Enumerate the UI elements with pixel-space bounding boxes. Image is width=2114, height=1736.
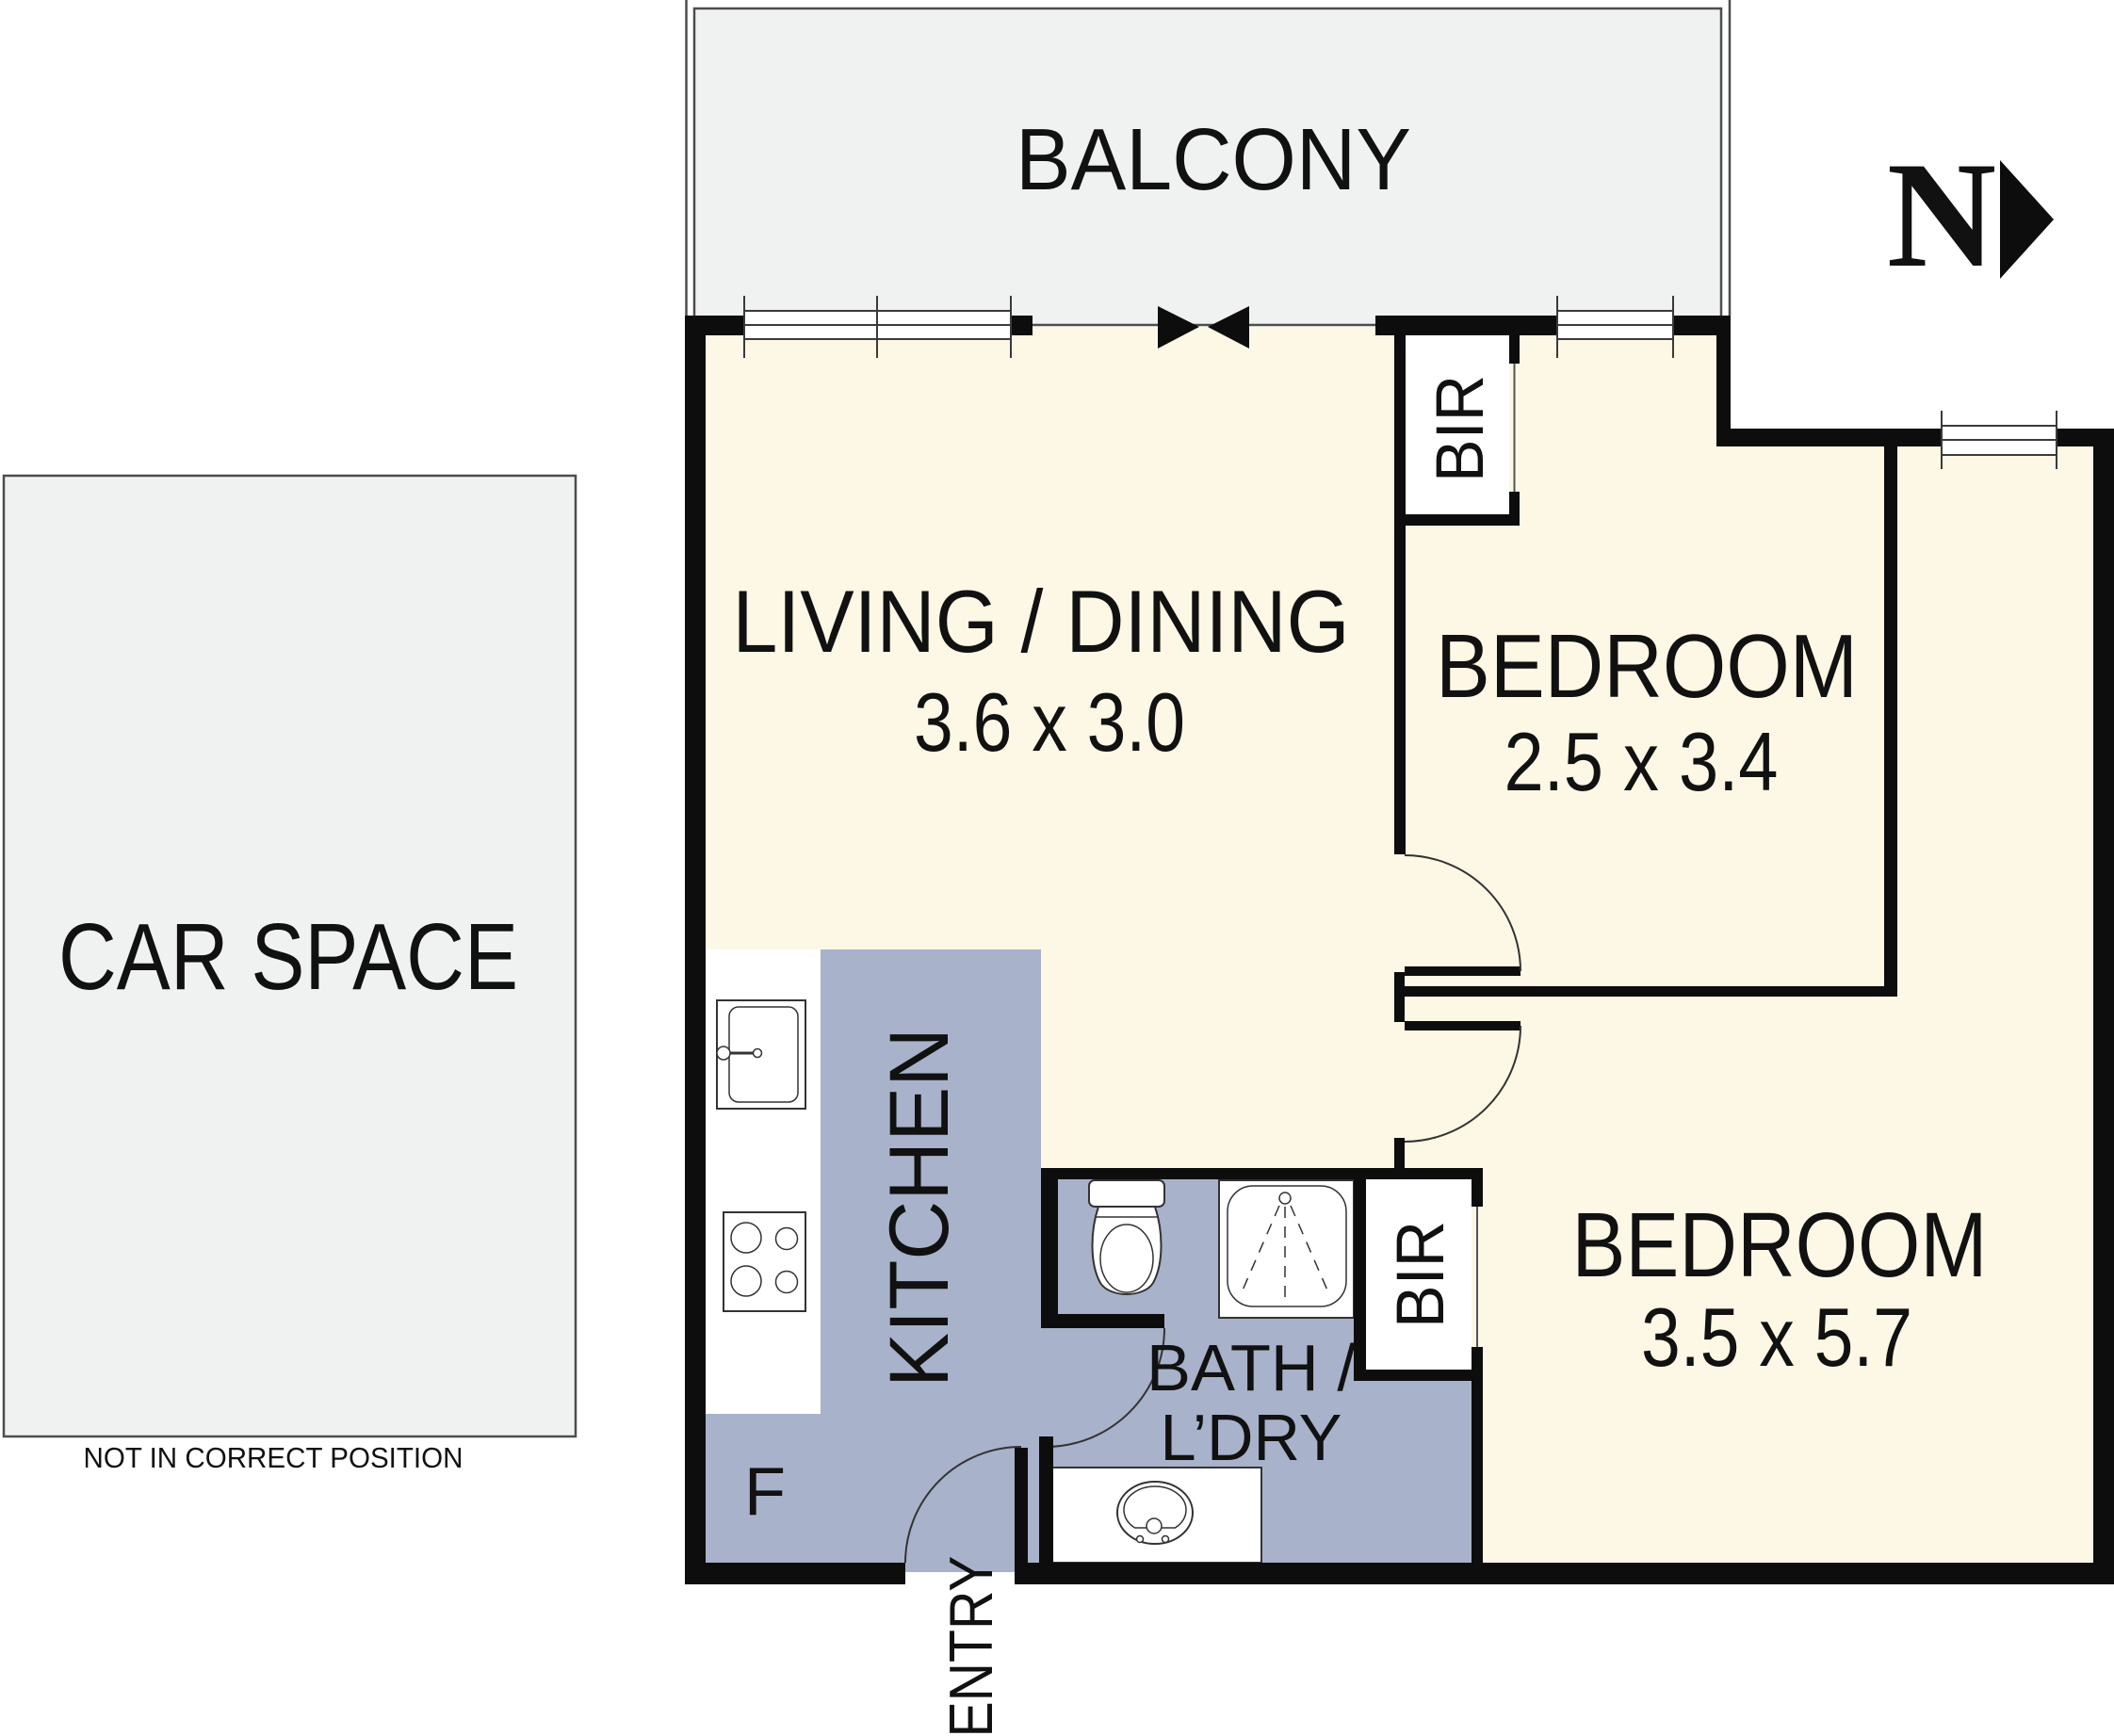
svg-text:KITCHEN: KITCHEN [871, 1028, 966, 1387]
svg-text:BIR: BIR [1423, 375, 1498, 482]
svg-text:CAR SPACE: CAR SPACE [58, 904, 518, 1010]
svg-text:ENTRY: ENTRY [936, 1556, 1005, 1736]
svg-text:NOT IN CORRECT POSITION: NOT IN CORRECT POSITION [84, 1442, 463, 1474]
svg-text:L’DRY: L’DRY [1161, 1401, 1342, 1474]
svg-text:2.5 x 3.4: 2.5 x 3.4 [1504, 715, 1779, 808]
svg-text:BEDROOM: BEDROOM [1436, 616, 1858, 717]
svg-text:BIR: BIR [1384, 1221, 1458, 1328]
svg-text:BEDROOM: BEDROOM [1572, 1193, 1988, 1296]
svg-text:F: F [744, 1454, 786, 1530]
svg-text:3.5 x 5.7: 3.5 x 5.7 [1641, 1290, 1912, 1384]
svg-text:BATH /: BATH / [1146, 1331, 1357, 1404]
svg-text:N: N [1887, 131, 1996, 299]
svg-text:3.6 x 3.0: 3.6 x 3.0 [914, 675, 1185, 769]
svg-text:BALCONY: BALCONY [1016, 110, 1411, 208]
svg-text:LIVING / DINING: LIVING / DINING [733, 572, 1350, 671]
